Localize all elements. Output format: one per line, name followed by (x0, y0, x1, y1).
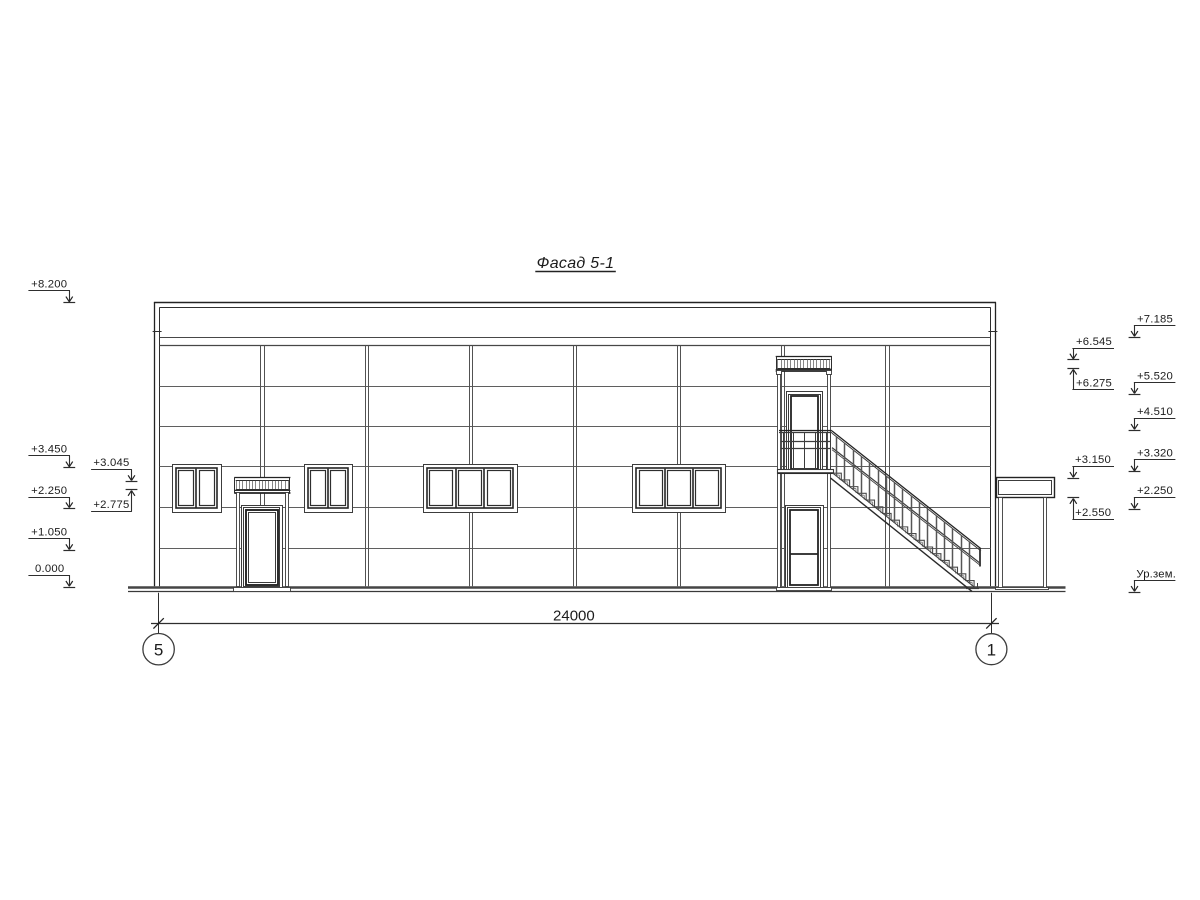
svg-text:+1.050: +1.050 (31, 526, 67, 538)
svg-text:+7.185: +7.185 (1137, 313, 1173, 325)
svg-text:Ур.зем.: Ур.зем. (1136, 568, 1176, 580)
svg-text:+6.545: +6.545 (1076, 336, 1112, 348)
svg-text:1: 1 (987, 640, 996, 659)
svg-text:+3.320: +3.320 (1137, 448, 1173, 460)
svg-text:+2.250: +2.250 (31, 485, 67, 497)
svg-text:+5.520: +5.520 (1137, 370, 1173, 382)
svg-text:+3.450: +3.450 (31, 444, 67, 456)
svg-text:24000: 24000 (553, 608, 595, 625)
svg-text:5: 5 (154, 640, 163, 659)
svg-text:Фасад 5-1: Фасад 5-1 (537, 255, 615, 272)
svg-text:+2.250: +2.250 (1137, 485, 1173, 497)
svg-text:+3.045: +3.045 (93, 457, 129, 469)
svg-text:+4.510: +4.510 (1137, 406, 1173, 418)
svg-text:+2.550: +2.550 (1075, 507, 1111, 519)
svg-text:0.000: 0.000 (35, 563, 64, 575)
svg-text:+3.150: +3.150 (1075, 454, 1111, 466)
svg-text:+2.775: +2.775 (93, 499, 129, 511)
svg-text:+6.275: +6.275 (1076, 378, 1112, 390)
svg-text:+8.200: +8.200 (31, 279, 67, 291)
